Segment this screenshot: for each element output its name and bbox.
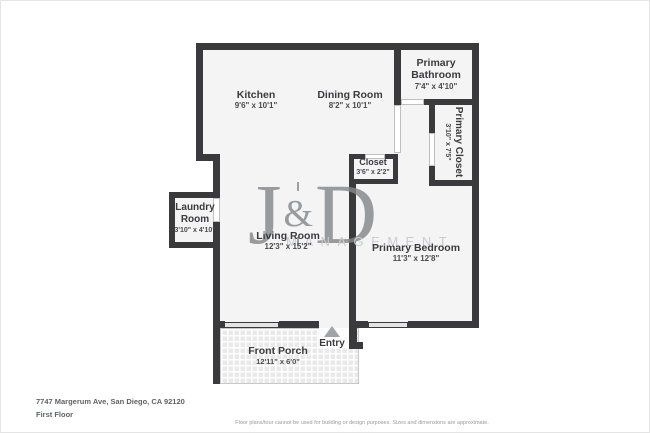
- primary-closet-dims: 3'10" x 7'5": [444, 97, 452, 187]
- wall-bedroom-stub: [357, 321, 368, 328]
- wall-laundry-bottom: [169, 242, 219, 248]
- bathroom-door-opening: [401, 99, 424, 105]
- entry-name: Entry: [319, 338, 345, 350]
- wall-bathroom-left: [394, 43, 401, 105]
- living-room-label: Living Room 12'3" x 15'2": [256, 230, 320, 252]
- dining-room-dims: 8'2" x 10'1": [317, 102, 382, 111]
- entry-label: Entry: [319, 338, 345, 350]
- living-room-name: Living Room: [256, 230, 320, 242]
- primary-closet-door-opening: [429, 133, 435, 166]
- bedroom-window: [368, 322, 408, 328]
- primary-bathroom-name-line1: Primary: [411, 57, 461, 69]
- primary-bedroom-label: Primary Bedroom 11'3" x 12'8": [372, 242, 460, 264]
- closet-label: Closet 3'6" x 2'2": [356, 157, 389, 176]
- watermark-dash-top: [297, 182, 299, 191]
- floor-level-label: First Floor: [36, 410, 73, 419]
- wall-entry-jog: [349, 342, 363, 349]
- primary-bathroom-label: Primary Bathroom 7'4" x 4'10": [411, 57, 461, 92]
- hallway-door-opening: [394, 105, 401, 153]
- laundry-room-name-line2: Room: [174, 214, 215, 226]
- front-porch-label: Front Porch 12'11" x 6'0": [248, 345, 308, 367]
- front-porch-name: Front Porch: [248, 345, 308, 357]
- front-porch-dims: 12'11" x 6'0": [248, 358, 308, 366]
- laundry-room-name-line1: Laundry: [174, 202, 215, 214]
- living-room-window: [224, 322, 279, 328]
- laundry-room-label: Laundry Room 3'10" x 4'10": [174, 202, 215, 234]
- wall-top: [196, 43, 479, 50]
- kitchen-label: Kitchen 9'6" x 10'1": [235, 89, 278, 111]
- entry-arrow-icon: [324, 326, 340, 337]
- dining-room-label: Dining Room 8'2" x 10'1": [317, 89, 382, 111]
- property-address: 7747 Margerum Ave, San Diego, CA 92120: [36, 397, 185, 406]
- dining-room-name: Dining Room: [317, 89, 382, 101]
- primary-bathroom-name-line2: Bathroom: [411, 69, 461, 81]
- wall-left-lower: [213, 222, 220, 384]
- watermark-ampersand: &: [283, 195, 313, 233]
- closet-name: Closet: [356, 157, 389, 168]
- primary-bedroom-name: Primary Bedroom: [372, 242, 460, 254]
- kitchen-name: Kitchen: [235, 89, 278, 101]
- wall-primary-closet-left-upper: [429, 99, 435, 133]
- primary-closet-label: Primary Closet 3'10" x 7'5": [444, 97, 464, 187]
- wall-bottom-right: [408, 321, 479, 328]
- primary-bathroom-dims: 7'4" x 4'10": [411, 83, 461, 92]
- wall-bottom-mid: [279, 321, 319, 328]
- floor-plan-page: J & D MANAGEMENT Kitchen 9'6" x 10'1" Di…: [0, 0, 650, 433]
- living-room-dims: 12'3" x 15'2": [256, 243, 320, 252]
- primary-closet-name: Primary Closet: [452, 97, 464, 187]
- wall-laundry-top: [169, 192, 219, 198]
- kitchen-dims: 9'6" x 10'1": [235, 102, 278, 111]
- wall-kitchen-left: [196, 43, 203, 161]
- primary-bedroom-dims: 11'3" x 12'8": [372, 255, 460, 264]
- closet-dims: 3'6" x 2'2": [356, 169, 389, 177]
- laundry-room-dims: 3'10" x 4'10": [174, 227, 215, 235]
- disclaimer-text: Floor plans/tour cannot be used for buil…: [235, 420, 488, 426]
